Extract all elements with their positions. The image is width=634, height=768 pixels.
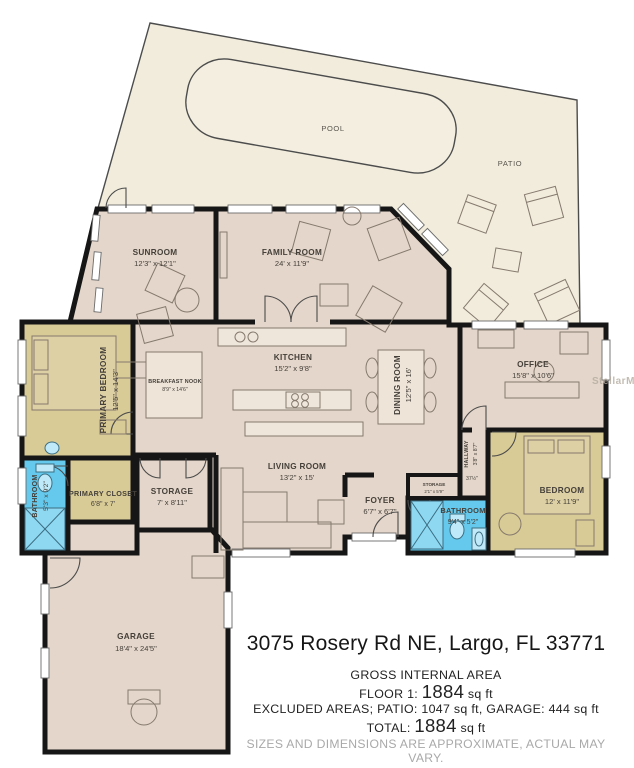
dims-foyer: 6'7" x 6'7" [363, 507, 397, 516]
floor-area-line: FLOOR 1: 1884 sq ft [228, 684, 624, 703]
floor-plan-page: POOL PATIO [0, 0, 634, 768]
note-hallway: 37½" [466, 475, 478, 482]
label-sunroom: SUNROOM [133, 248, 178, 257]
watermark: StellarMLS [592, 376, 634, 387]
dims-family-room: 24' x 11'9" [275, 259, 309, 268]
total-value: 1884 [414, 715, 456, 736]
dims-primary-bedroom: 12'5" x 14'3" [111, 369, 120, 411]
total-area-line: TOTAL: 1884 sq ft [228, 718, 624, 737]
dims-hallway: 3'8" x 8'7" [473, 443, 479, 466]
label-family-room: FAMILY ROOM [262, 248, 322, 257]
dims-bathroom-right: 9'4" x 5'2" [448, 519, 479, 526]
dims-dining-room: 12'5" x 16' [404, 367, 413, 402]
dims-breakfast-nook: 8'9" x 14'6" [162, 387, 188, 393]
floor-label: FLOOR 1: [359, 687, 418, 701]
dims-storage: 7' x 8'11" [157, 498, 187, 507]
label-dining-room: DINING ROOM [393, 355, 402, 415]
label-storage-small: STORAGE [423, 482, 446, 487]
pool-label: POOL [321, 124, 344, 133]
label-garage: GARAGE [117, 632, 155, 641]
label-bathroom-left: BATHROOM [32, 474, 39, 517]
dims-office: 15'8" x 10'6" [512, 371, 554, 380]
dims-primary-closet: 6'8" x 7' [91, 501, 115, 508]
total-unit: sq ft [460, 721, 485, 735]
patio-label: PATIO [498, 159, 522, 168]
label-bathroom-right: BATHROOM [440, 506, 485, 515]
dims-bathroom-left: 5'3" x 9'2" [43, 481, 50, 511]
total-label: TOTAL: [367, 721, 411, 735]
disclaimer-text: SIZES AND DIMENSIONS ARE APPROXIMATE, AC… [228, 737, 624, 765]
floor-value: 1884 [422, 681, 464, 702]
dims-bedroom: 12' x 11'9" [545, 497, 579, 506]
label-primary-closet: PRIMARY CLOSET [69, 489, 137, 498]
label-hallway: HALLWAY [464, 440, 470, 467]
label-breakfast-nook: BREAKFAST NOOK [148, 379, 201, 385]
dims-living-room: 13'2" x 15' [280, 473, 315, 482]
dims-sunroom: 12'3" x 12'1" [134, 259, 176, 268]
label-kitchen: KITCHEN [274, 353, 313, 362]
dims-kitchen: 15'2" x 9'8" [274, 364, 312, 373]
label-office: OFFICE [517, 360, 549, 369]
dims-garage: 18'4" x 24'5" [115, 644, 157, 653]
label-foyer: FOYER [365, 496, 395, 505]
dims-storage-small: 2'1" x 5'9" [424, 489, 444, 494]
property-address: 3075 Rosery Rd NE, Largo, FL 33771 [228, 632, 624, 656]
label-primary-bedroom: PRIMARY BEDROOM [99, 347, 108, 434]
label-storage: STORAGE [151, 487, 194, 496]
label-bedroom: BEDROOM [540, 486, 585, 495]
floor-unit: sq ft [468, 687, 493, 701]
label-living-room: LIVING ROOM [268, 462, 326, 471]
footer: 3075 Rosery Rd NE, Largo, FL 33771 GROSS… [228, 632, 624, 765]
